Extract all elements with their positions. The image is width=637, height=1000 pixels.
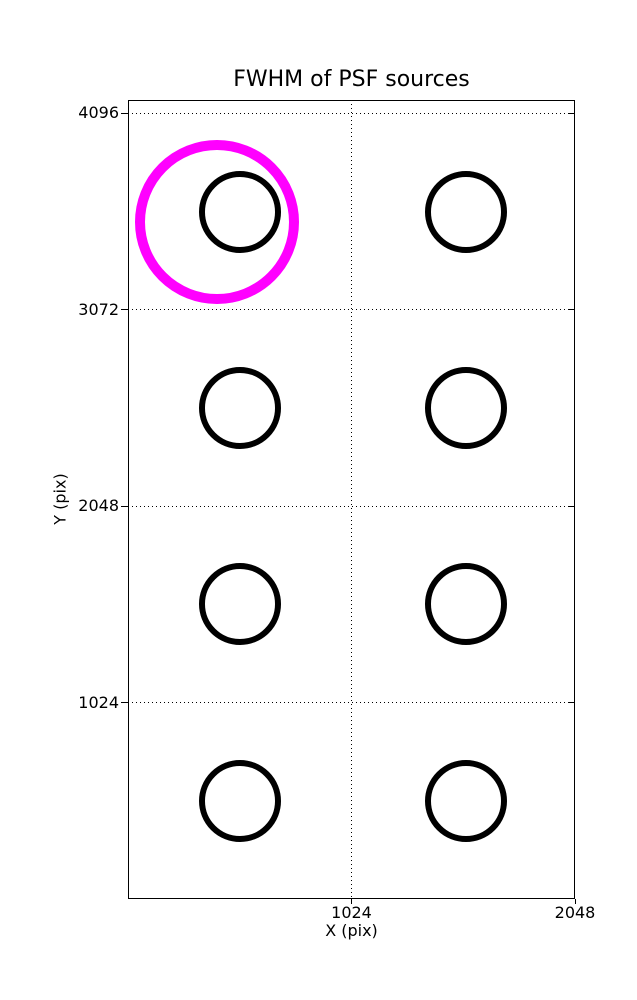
psf-sources-marker <box>199 367 281 449</box>
ytick-left-2048 <box>121 506 128 507</box>
psf-sources-marker <box>425 760 507 842</box>
ytick-left-4096 <box>121 113 128 114</box>
ytick-left-1024 <box>121 702 128 703</box>
xtick-label-1024: 1024 <box>307 903 397 923</box>
ytick-right-4096 <box>568 113 575 114</box>
ytick-left-3072 <box>121 309 128 310</box>
ytick-label-4096: 4096 <box>59 103 119 123</box>
chart-title: FWHM of PSF sources <box>128 68 575 92</box>
gridline-x-1024 <box>351 100 352 899</box>
ytick-right-3072 <box>568 309 575 310</box>
psf-sources-marker <box>425 171 507 253</box>
xtick-label-2048: 2048 <box>530 903 620 923</box>
ytick-right-2048 <box>568 506 575 507</box>
ytick-label-3072: 3072 <box>59 300 119 320</box>
figure: FWHM of PSF sources Y (pix) X (pix) 1024… <box>0 0 637 1000</box>
x-axis-label: X (pix) <box>128 921 575 940</box>
ytick-label-2048: 2048 <box>59 496 119 516</box>
psf-sources-marker <box>425 367 507 449</box>
ytick-label-1024: 1024 <box>59 693 119 713</box>
psf-sources-marker <box>199 563 281 645</box>
highlighted-source-marker <box>135 140 299 304</box>
psf-sources-marker <box>199 760 281 842</box>
ytick-right-1024 <box>568 702 575 703</box>
